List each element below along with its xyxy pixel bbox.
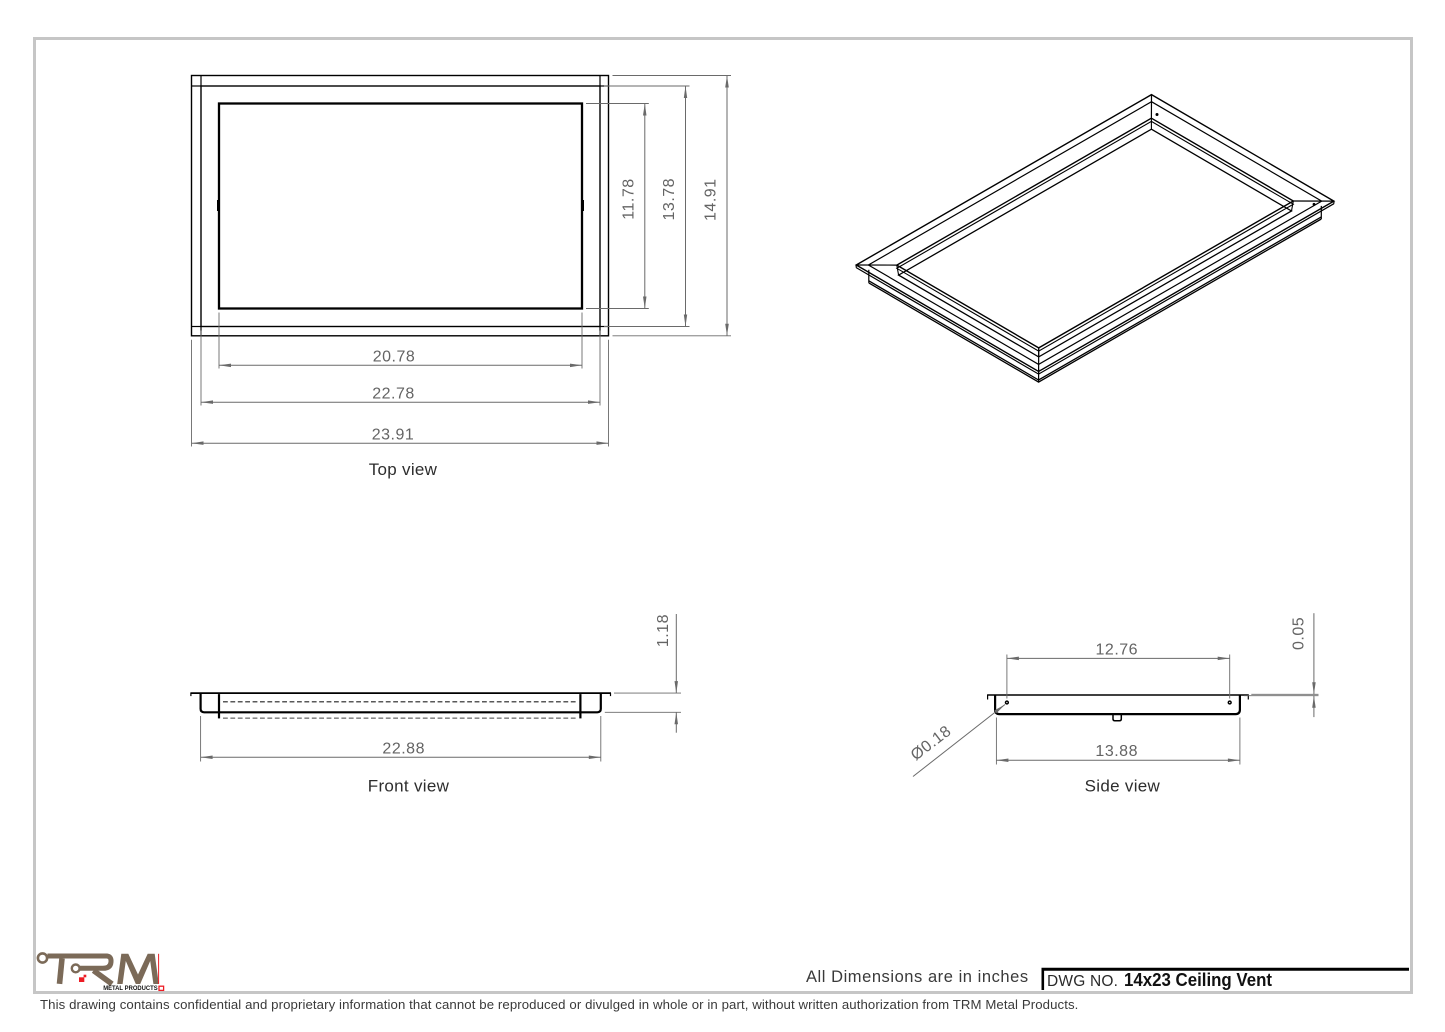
svg-text:14x23 Ceiling Vent: 14x23 Ceiling Vent: [1124, 970, 1272, 990]
svg-text:0.05: 0.05: [1291, 617, 1308, 650]
svg-text:12.76: 12.76: [1096, 642, 1139, 659]
svg-text:20.78: 20.78: [373, 349, 416, 366]
svg-text:13.88: 13.88: [1095, 743, 1138, 760]
svg-text:22.78: 22.78: [372, 386, 415, 403]
svg-text:Top view: Top view: [369, 460, 438, 479]
svg-text:1.18: 1.18: [655, 614, 672, 647]
svg-text:23.91: 23.91: [372, 427, 415, 444]
svg-text:DWG NO.: DWG NO.: [1047, 973, 1118, 990]
svg-text:11.78: 11.78: [621, 178, 638, 219]
svg-text:Side view: Side view: [1085, 777, 1161, 796]
svg-text:Front view: Front view: [368, 777, 450, 796]
svg-text:13.78: 13.78: [661, 178, 678, 221]
svg-text:14.91: 14.91: [703, 178, 720, 221]
svg-text:METAL PRODUCTS: METAL PRODUCTS: [103, 985, 158, 992]
svg-text:This drawing contains confiden: This drawing contains confidential and p…: [40, 997, 1078, 1012]
svg-text:22.88: 22.88: [382, 741, 425, 758]
svg-text:Ø0.18: Ø0.18: [908, 723, 955, 765]
svg-text:All Dimensions are in inches: All Dimensions are in inches: [806, 968, 1029, 986]
